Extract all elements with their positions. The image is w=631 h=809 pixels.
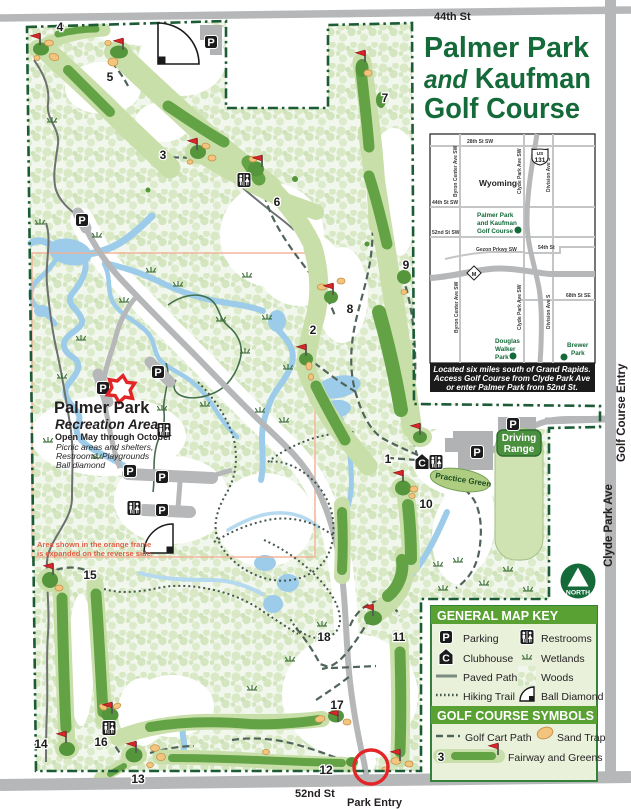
svg-text:12: 12 [319,763,333,777]
svg-text:Ball diamond: Ball diamond [56,460,105,470]
svg-text:Sand Trap: Sand Trap [557,732,606,744]
svg-text:Clyde Park Ave SW: Clyde Park Ave SW [517,148,523,194]
svg-text:Park Entry: Park Entry [347,797,403,809]
svg-text:8: 8 [347,302,354,316]
svg-text:6: 6 [274,195,281,209]
svg-text:GENERAL MAP KEY: GENERAL MAP KEY [437,609,559,623]
svg-text:44th St: 44th St [434,11,471,23]
svg-text:1: 1 [385,452,392,466]
svg-text:Located six miles south of Gra: Located six miles south of Grand Rapids. [433,365,590,374]
svg-text:13: 13 [131,772,145,786]
svg-text:Driving: Driving [502,433,536,444]
svg-text:Woods: Woods [541,672,574,684]
svg-text:Palmer Park: Palmer Park [54,399,150,417]
svg-text:2: 2 [310,323,317,337]
svg-text:Palmer Park: Palmer Park [477,212,514,219]
svg-text:Clyde Park Ave: Clyde Park Ave [603,484,615,567]
svg-text:Golf Course: Golf Course [477,228,514,235]
svg-text:9: 9 [403,258,410,272]
svg-text:Walker: Walker [495,346,516,353]
svg-text:and Kaufman: and Kaufman [424,63,591,95]
svg-text:NORTH: NORTH [566,590,590,597]
svg-text:52nd St: 52nd St [295,788,335,800]
svg-text:GOLF COURSE SYMBOLS: GOLF COURSE SYMBOLS [437,709,594,723]
svg-text:Division Ave S: Division Ave S [546,157,552,192]
svg-text:3: 3 [438,750,445,764]
svg-text:and Kaufman: and Kaufman [477,220,517,227]
svg-text:131: 131 [535,157,546,164]
svg-text:15: 15 [83,568,97,582]
svg-text:Range: Range [504,444,535,455]
svg-text:5: 5 [107,70,114,84]
svg-text:Golf Course: Golf Course [424,93,580,125]
svg-text:14: 14 [34,737,48,751]
svg-text:52nd St SW: 52nd St SW [432,230,460,236]
svg-text:Park: Park [495,354,509,361]
svg-text:Parking: Parking [463,633,499,645]
svg-text:Byron Center Ave SW: Byron Center Ave SW [453,145,459,197]
svg-text:54th St: 54th St [538,245,555,251]
svg-text:Area shown in the orange frame: Area shown in the orange frame [37,540,151,549]
svg-text:M: M [472,272,477,278]
svg-text:Ball Diamond: Ball Diamond [541,691,604,703]
svg-text:18: 18 [317,630,331,644]
svg-text:3: 3 [160,148,167,162]
svg-text:Douglas: Douglas [495,338,520,345]
svg-text:28th St SW: 28th St SW [467,139,493,145]
svg-text:Hiking Trail: Hiking Trail [463,691,515,703]
svg-text:Open May through October: Open May through October [55,432,172,442]
svg-text:44th St SW: 44th St SW [432,200,458,206]
svg-text:Byron Center Ave SW: Byron Center Ave SW [454,281,460,333]
svg-text:Palmer Park: Palmer Park [424,32,590,64]
svg-text:Paved Path: Paved Path [463,672,517,684]
svg-text:Access Golf Course from Clyde: Access Golf Course from Clyde Park Ave [433,374,591,383]
svg-text:or enter Palmer Park from 52nd: or enter Palmer Park from 52nd St. [446,383,578,392]
svg-text:Clyde Park Ave SW: Clyde Park Ave SW [517,284,523,330]
svg-text:17: 17 [330,698,344,712]
svg-text:Recreation Area: Recreation Area [55,417,159,432]
svg-text:Wyoming: Wyoming [479,178,517,188]
svg-text:10: 10 [419,497,433,511]
svg-text:68th St SE: 68th St SE [566,293,591,299]
svg-text:7: 7 [382,91,389,105]
svg-text:Brewer: Brewer [567,342,589,349]
svg-text:Fairway and Greens: Fairway and Greens [508,752,603,764]
svg-text:Golf Cart Path: Golf Cart Path [465,732,532,744]
svg-text:Clubhouse: Clubhouse [463,653,513,665]
svg-text:11: 11 [393,630,406,644]
svg-text:Division Ave S: Division Ave S [546,294,552,329]
svg-text:16: 16 [94,735,108,749]
svg-text:Restrooms: Restrooms [541,633,592,645]
svg-text:Park: Park [571,350,585,357]
svg-text:4: 4 [57,20,64,34]
svg-text:is expanded on the reverse sid: is expanded on the reverse side. [37,549,153,558]
svg-text:Golf Course Entry: Golf Course Entry [616,363,628,462]
svg-text:Wetlands: Wetlands [541,653,585,665]
svg-text:Gezon Prkwy SW: Gezon Prkwy SW [476,247,517,253]
